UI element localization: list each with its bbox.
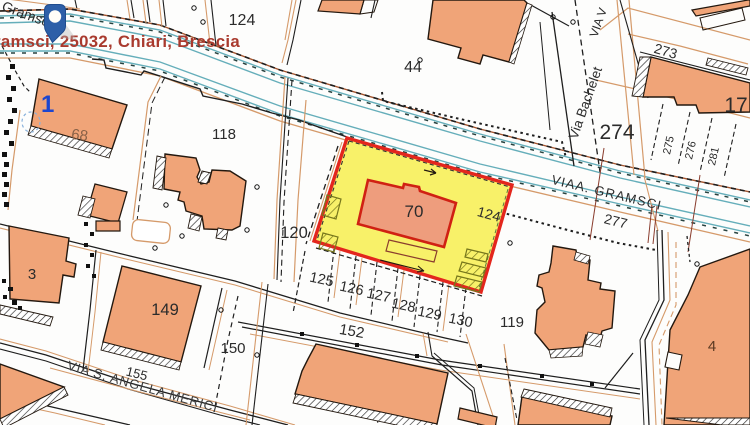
svg-text:44: 44 (404, 59, 422, 76)
svg-text:124: 124 (229, 12, 256, 29)
svg-text:274: 274 (599, 121, 634, 144)
svg-text:1: 1 (41, 91, 54, 118)
svg-text:150: 150 (220, 340, 245, 357)
svg-text:ramsci, 25032, Chiari, Brescia: ramsci, 25032, Chiari, Brescia (0, 32, 240, 51)
svg-text:17: 17 (724, 94, 747, 117)
svg-text:68: 68 (70, 126, 89, 145)
svg-text:4: 4 (708, 338, 716, 355)
svg-text:120: 120 (280, 224, 308, 242)
svg-text:70: 70 (405, 202, 424, 221)
svg-text:118: 118 (212, 126, 236, 143)
svg-text:119: 119 (500, 314, 524, 331)
svg-text:149: 149 (151, 301, 179, 319)
svg-text:3: 3 (28, 266, 36, 283)
